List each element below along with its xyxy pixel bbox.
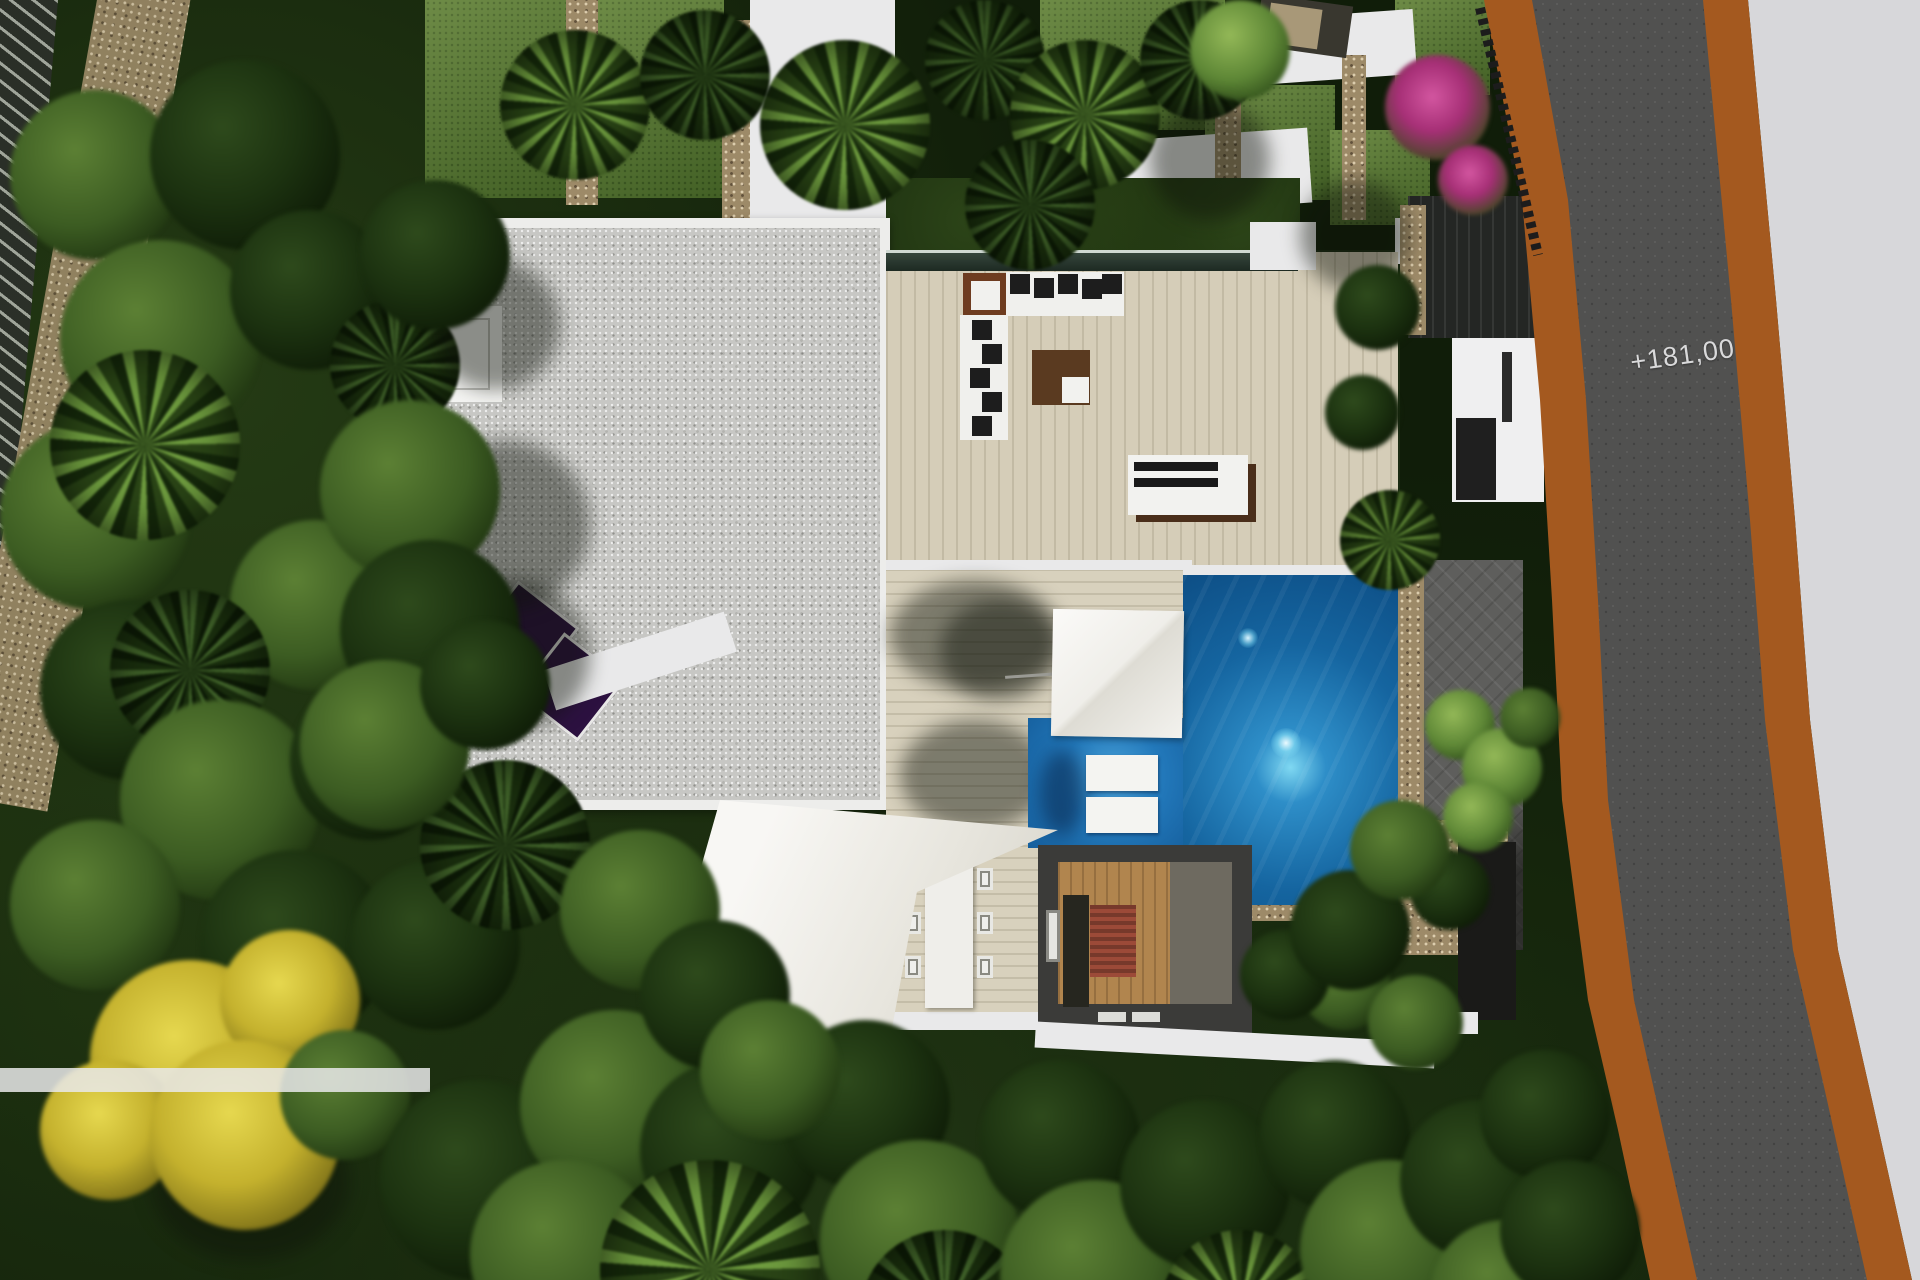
parasol-shadow xyxy=(940,600,1060,700)
sunlounger-gap xyxy=(1134,478,1218,487)
chaise-cushion xyxy=(982,344,1002,364)
bush xyxy=(1443,782,1513,852)
chaise-cushion xyxy=(982,392,1002,412)
palm-tree xyxy=(760,40,930,210)
pool-sparkle xyxy=(1271,728,1301,758)
pool-lounger xyxy=(1086,797,1158,833)
kitchen-runner-rug xyxy=(1090,905,1136,977)
bush xyxy=(1368,975,1463,1070)
sofa-cushion xyxy=(1034,278,1054,298)
chaise-cushion xyxy=(970,368,990,388)
kitchen-step xyxy=(1098,1012,1126,1022)
sunlounger-gap xyxy=(1134,462,1218,471)
tree xyxy=(700,1000,840,1140)
kitchen-step xyxy=(1132,1012,1160,1022)
dining-chair xyxy=(977,868,993,890)
bougainvillea xyxy=(1438,145,1508,215)
sofa-cushion xyxy=(1102,274,1122,294)
garden-wall xyxy=(0,1068,430,1092)
palm-tree xyxy=(50,350,240,540)
dining-chair xyxy=(977,912,993,934)
lounger-shadow xyxy=(1040,750,1085,835)
kitchen-side xyxy=(1170,862,1232,1004)
tree xyxy=(10,820,180,990)
coffee-table-tray xyxy=(1062,377,1089,403)
tree xyxy=(360,180,510,330)
pool-sparkle xyxy=(1238,628,1258,648)
sofa-cushion xyxy=(1058,274,1078,294)
terrace-step xyxy=(886,560,1192,570)
chaise-cushion xyxy=(972,320,992,340)
kitchen-door xyxy=(1046,910,1060,962)
tree xyxy=(420,620,550,750)
dining-chair xyxy=(977,956,993,978)
bush xyxy=(1500,688,1560,748)
bush xyxy=(1190,0,1290,100)
tree-shadow xyxy=(1150,100,1270,220)
pool-lounger xyxy=(1086,755,1158,791)
tree xyxy=(1350,800,1450,900)
square-parasol xyxy=(1051,609,1184,738)
site-plan-render: +181,00 xyxy=(0,0,1920,1280)
bush xyxy=(1335,265,1420,350)
dining-chair xyxy=(905,956,921,978)
sofa-cushion xyxy=(1010,274,1030,294)
palm-tree xyxy=(500,30,650,180)
deck-planter-inner xyxy=(971,281,1000,310)
chaise-cushion xyxy=(972,416,992,436)
palm-tree xyxy=(1340,490,1440,590)
kitchen-island xyxy=(1063,895,1089,1007)
sofa-cushion xyxy=(1082,279,1102,299)
tree xyxy=(1480,1050,1610,1180)
bush xyxy=(1325,375,1400,450)
palm-tree xyxy=(965,140,1095,270)
palm-tree xyxy=(640,10,770,140)
glass-railing xyxy=(886,250,1298,271)
